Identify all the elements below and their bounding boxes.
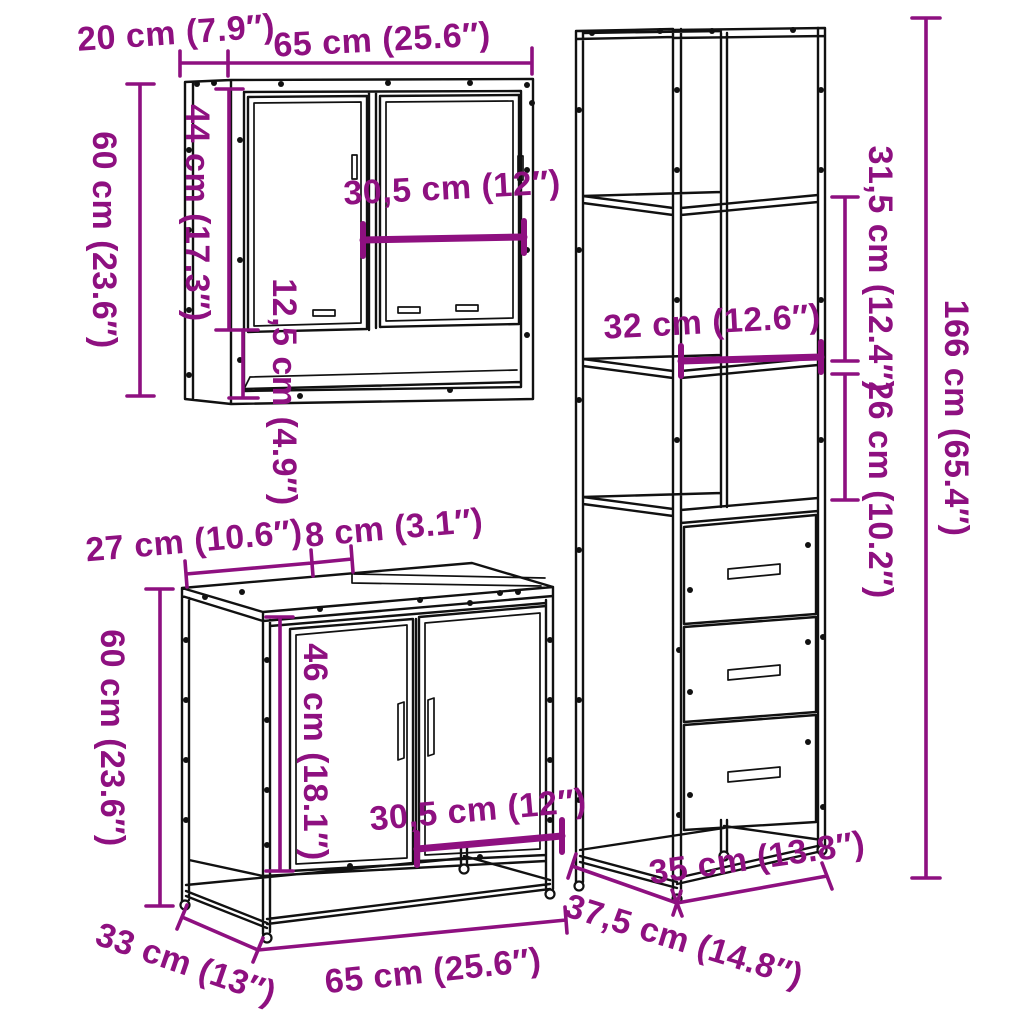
screw-dots xyxy=(576,27,826,818)
dim-tall-height: 166 cm (65.4″) xyxy=(912,18,975,878)
dim-label-mirror-door-height: 44 cm (17.3″) xyxy=(178,104,216,321)
dim-tall-middle-section: 26 cm (10.2″) xyxy=(832,374,899,599)
dim-label-tall-upper-section: 31,5 cm (12.4″) xyxy=(861,146,899,393)
tall-cabinet-body xyxy=(576,28,825,896)
dim-vanity-top-gap: 8 cm (3.1″) xyxy=(303,501,484,572)
tall-cabinet-drawing xyxy=(575,27,827,904)
vanity-foot xyxy=(546,890,555,899)
dim-vanity-height: 60 cm (23.6″) xyxy=(93,589,173,906)
dim-tall-width: 35 cm (13.8″) xyxy=(647,824,868,916)
dim-tall-upper-section: 31,5 cm (12.4″) xyxy=(832,146,899,393)
dim-label-vanity-top-gap: 8 cm (3.1″) xyxy=(303,501,484,554)
dim-mirror-shelf-height: 12,5 cm (4.9″) xyxy=(229,278,303,505)
product-dimension-diagram: 20 cm (7.9″) 65 cm (25.6″) 60 cm (23.6″)… xyxy=(0,0,1024,1024)
dim-mirror-door-height: 44 cm (17.3″) xyxy=(178,89,258,330)
dim-label-mirror-height: 60 cm (23.6″) xyxy=(85,131,123,348)
dim-vanity-width: 65 cm (25.6″) xyxy=(258,907,567,1001)
diagram-canvas: 20 cm (7.9″) 65 cm (25.6″) 60 cm (23.6″)… xyxy=(0,0,1024,1024)
dim-label-tall-height: 166 cm (65.4″) xyxy=(937,300,975,537)
dim-label-vanity-door-height: 46 cm (18.1″) xyxy=(296,643,334,860)
dim-label-vanity-top-section-depth: 27 cm (10.6″) xyxy=(84,513,304,570)
dim-vanity-door-height: 46 cm (18.1″) xyxy=(266,617,334,871)
dim-label-mirror-width: 65 cm (25.6″) xyxy=(272,15,491,64)
dim-label-vanity-door-width: 30,5 cm (12″) xyxy=(368,782,588,839)
mirror-cabinet-body xyxy=(185,79,533,404)
vanity-foot xyxy=(460,865,469,874)
vanity-cabinet-body xyxy=(182,563,553,934)
tall-cabinet-details xyxy=(728,564,780,782)
dim-label-vanity-height: 60 cm (23.6″) xyxy=(93,629,131,846)
dim-mirror-depth: 20 cm (7.9″) xyxy=(76,7,276,76)
vanity-cabinet-drawing xyxy=(181,563,555,943)
dim-tall-shelf-width: 32 cm (12.6″) xyxy=(602,297,821,376)
dim-label-mirror-shelf-height: 12,5 cm (4.9″) xyxy=(265,278,303,505)
dim-mirror-height: 60 cm (23.6″) xyxy=(85,84,154,396)
dim-vanity-top-section-depth: 27 cm (10.6″) xyxy=(84,513,313,587)
dim-label-mirror-depth: 20 cm (7.9″) xyxy=(76,7,276,59)
dim-mirror-door-width: 30,5 cm (12″) xyxy=(342,163,561,256)
dim-label-tall-middle-section: 26 cm (10.2″) xyxy=(861,381,899,598)
dim-label-vanity-width: 65 cm (25.6″) xyxy=(323,941,543,1002)
dim-label-tall-shelf-width: 32 cm (12.6″) xyxy=(602,297,821,346)
dim-label-vanity-depth: 33 cm (13″) xyxy=(91,915,281,1012)
